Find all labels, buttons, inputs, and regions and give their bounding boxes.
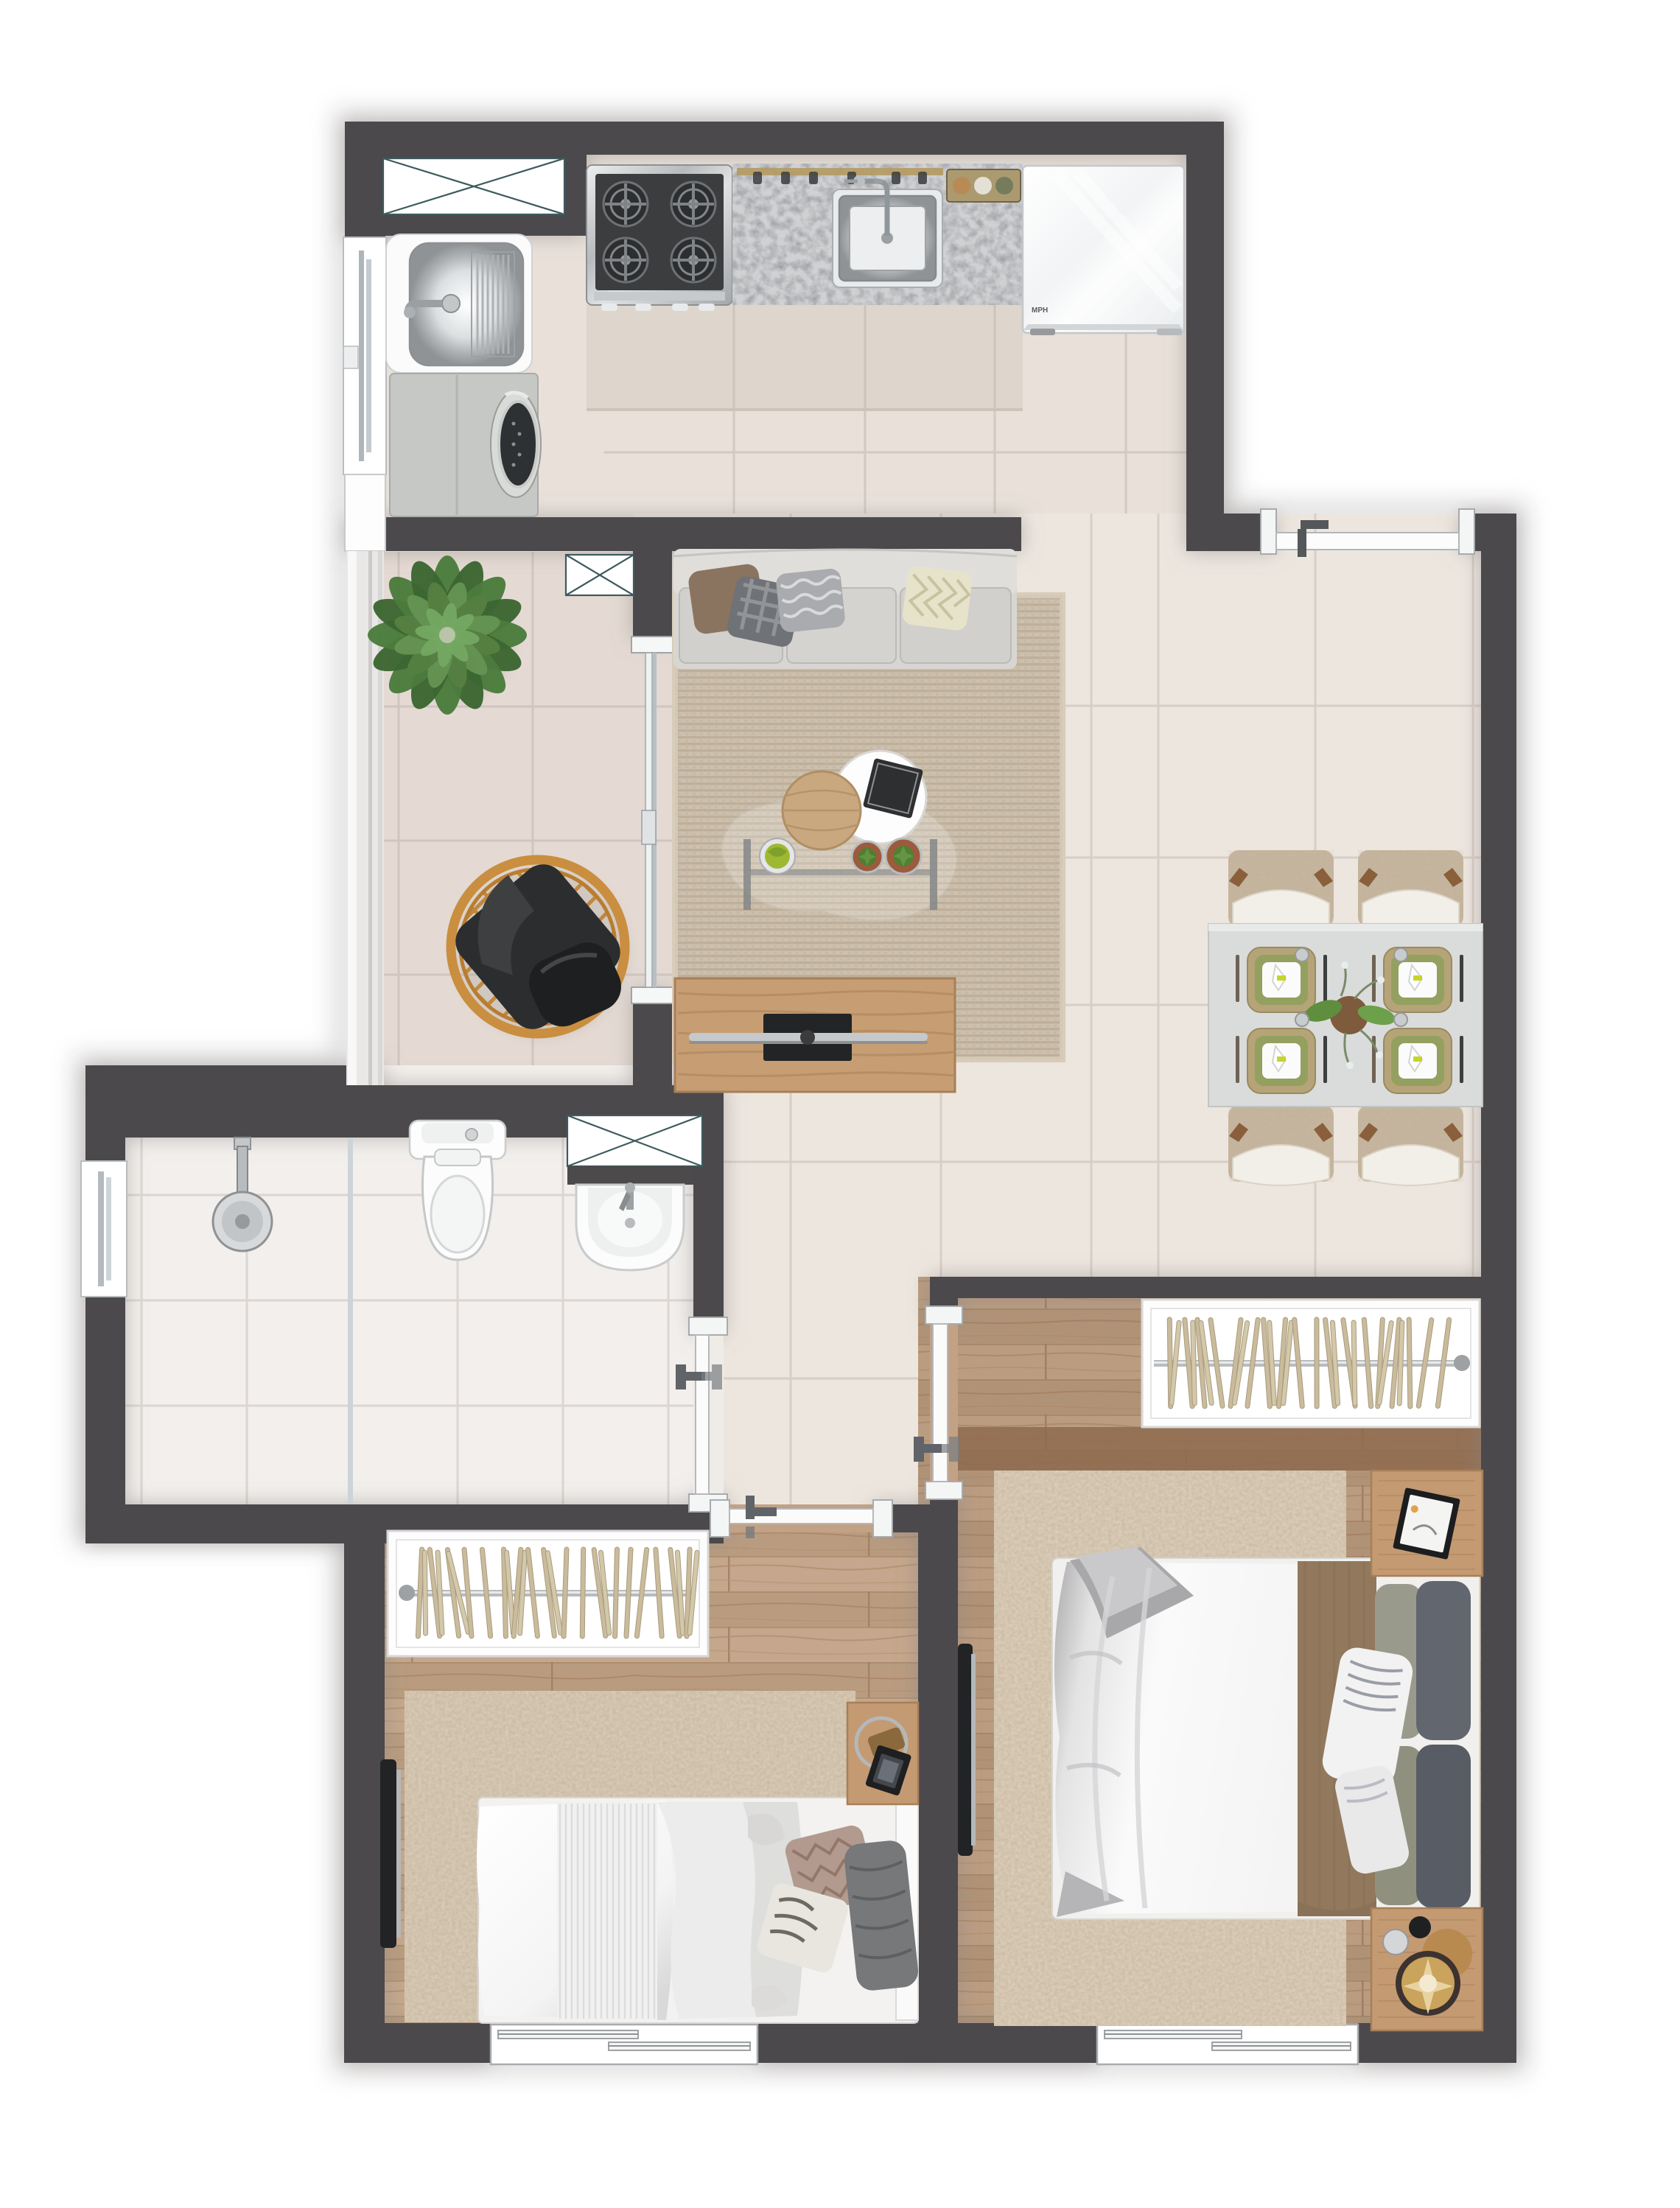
svg-text:MPH: MPH [1032, 306, 1048, 315]
